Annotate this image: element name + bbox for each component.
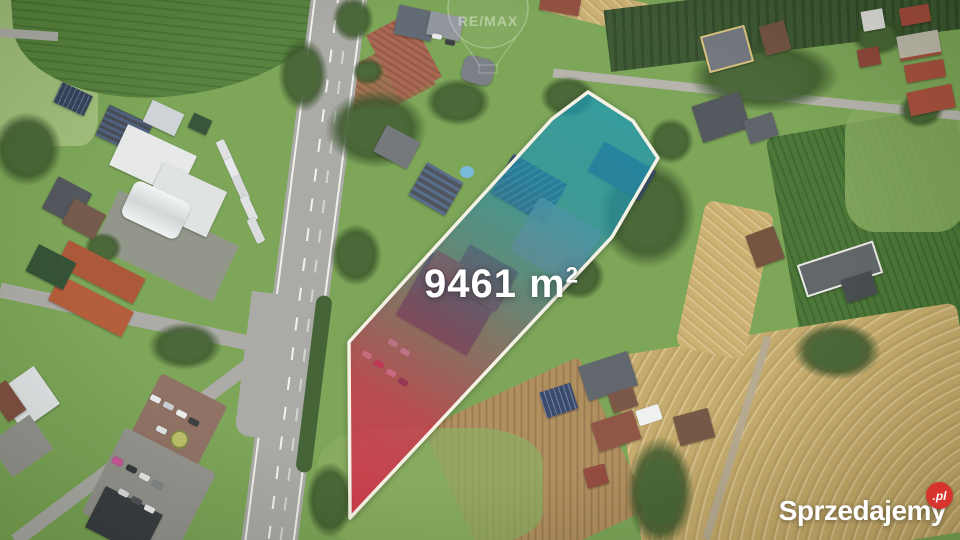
parcel-area-label: 9461 m2: [424, 262, 579, 307]
area-value: 9461: [424, 262, 517, 306]
remax-label: RE/MAX: [458, 13, 518, 29]
portal-name-label: Sprzedajemy: [779, 495, 946, 526]
pl-badge: .pl: [926, 482, 953, 509]
sprzedajemy-logo: Sprzedajemy .pl: [779, 495, 946, 527]
area-exponent: 2: [566, 263, 579, 288]
balloon-basket-icon: [479, 65, 497, 73]
aerial-photo: 9461 m2 RE/MAX Sprzedajemy .pl: [0, 0, 960, 540]
remax-watermark: RE/MAX: [420, 0, 560, 80]
area-unit: m: [529, 262, 566, 306]
